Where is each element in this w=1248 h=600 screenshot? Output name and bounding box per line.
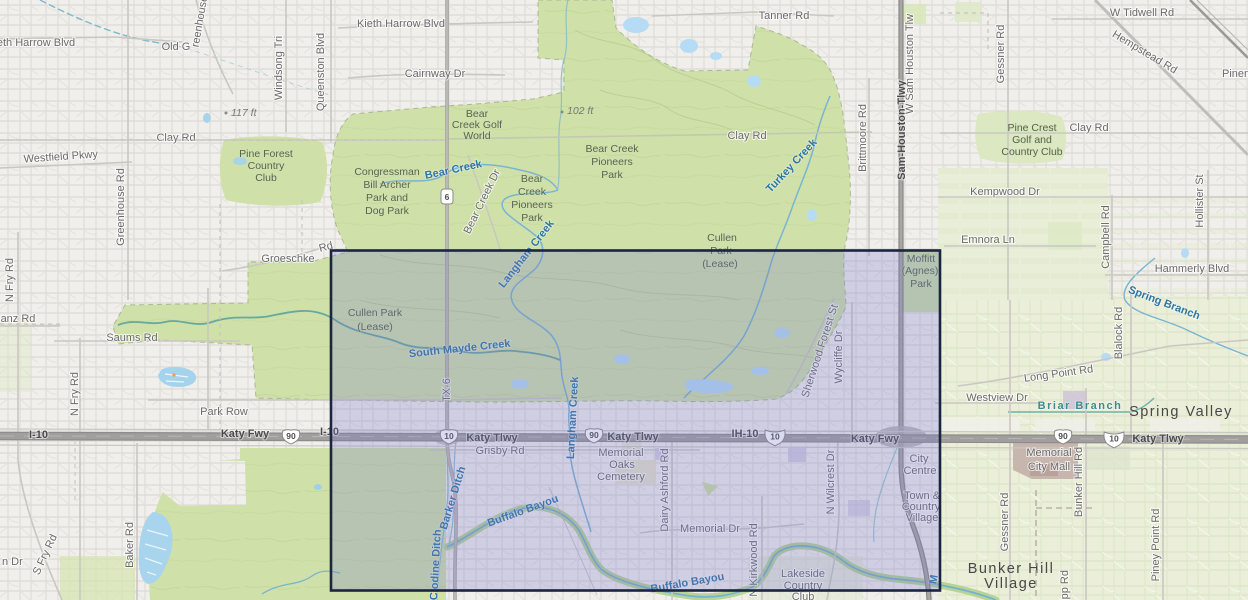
svg-text:Pine Crest: Pine Crest — [1007, 122, 1056, 134]
svg-text:Queenston Blvd: Queenston Blvd — [315, 33, 327, 111]
svg-text:Pioneers: Pioneers — [591, 156, 632, 168]
svg-text:102 ft: 102 ft — [567, 105, 594, 117]
svg-text:Congressman: Congressman — [354, 166, 420, 178]
svg-text:Kempwood Dr: Kempwood Dr — [970, 186, 1040, 198]
svg-text:W Sam Houston Tlw: W Sam Houston Tlw — [904, 14, 916, 114]
svg-text:Briar Branch: Briar Branch — [1038, 400, 1123, 412]
svg-text:anz Rd: anz Rd — [1, 313, 36, 325]
svg-text:hipp Rd: hipp Rd — [1059, 570, 1071, 600]
svg-text:Saums Rd: Saums Rd — [106, 332, 157, 344]
svg-text:Park: Park — [521, 212, 543, 224]
svg-text:90: 90 — [286, 431, 296, 441]
svg-text:Kieth Harrow Blvd: Kieth Harrow Blvd — [357, 18, 445, 30]
svg-text:6: 6 — [445, 192, 450, 202]
svg-text:Village: Village — [984, 576, 1038, 592]
svg-text:Katy Fwy: Katy Fwy — [221, 428, 270, 440]
svg-text:Brittmoore Rd: Brittmoore Rd — [857, 104, 869, 172]
svg-text:Campbell Rd: Campbell Rd — [1100, 205, 1112, 269]
svg-text:Katy Tlwy: Katy Tlwy — [1132, 433, 1184, 445]
svg-text:Hollister St: Hollister St — [1194, 174, 1206, 227]
svg-text:Old G: Old G — [162, 41, 191, 53]
svg-text:eth Harrow Blvd: eth Harrow Blvd — [0, 37, 75, 49]
svg-text:Windsong Tri: Windsong Tri — [273, 36, 285, 100]
svg-text:W Tidwell Rd: W Tidwell Rd — [1110, 7, 1174, 19]
svg-text:Cairnway Dr: Cairnway Dr — [405, 68, 466, 80]
svg-text:Dog Park: Dog Park — [365, 205, 410, 217]
svg-text:Bear: Bear — [521, 173, 544, 185]
svg-text:Park and: Park and — [366, 192, 408, 204]
svg-text:Golf and: Golf and — [1012, 134, 1052, 146]
svg-text:Gessner Rd: Gessner Rd — [995, 25, 1007, 84]
svg-text:90: 90 — [1058, 431, 1068, 441]
svg-text:10: 10 — [1109, 434, 1119, 444]
svg-text:Greenhouse Rd: Greenhouse Rd — [115, 168, 127, 246]
svg-text:Spring Valley: Spring Valley — [1129, 404, 1233, 420]
svg-text:Creek: Creek — [518, 186, 547, 198]
svg-text:Blalock Rd: Blalock Rd — [1113, 307, 1125, 360]
svg-text:City Mall: City Mall — [1028, 461, 1070, 473]
svg-text:Pioneers: Pioneers — [511, 199, 552, 211]
svg-text:Clay Rd: Clay Rd — [727, 130, 766, 142]
svg-text:I-10: I-10 — [29, 429, 48, 441]
svg-text:Country: Country — [248, 160, 286, 172]
svg-text:Country Club: Country Club — [1001, 146, 1062, 158]
svg-text:Cullen: Cullen — [707, 232, 737, 244]
svg-text:Park: Park — [601, 169, 623, 181]
svg-text:Westview Dr: Westview Dr — [966, 392, 1028, 404]
svg-text:Memorial: Memorial — [1026, 447, 1071, 459]
svg-text:Pine Forest: Pine Forest — [239, 148, 293, 160]
svg-text:117 ft: 117 ft — [231, 107, 258, 119]
svg-text:Club: Club — [255, 172, 277, 184]
svg-text:N Fry Rd: N Fry Rd — [69, 372, 81, 416]
svg-text:World: World — [463, 130, 490, 142]
svg-text:N Fry Rd: N Fry Rd — [4, 258, 16, 302]
svg-text:Clay Rd: Clay Rd — [1069, 122, 1108, 134]
svg-text:Club: Club — [792, 591, 815, 600]
svg-text:Bear Creek: Bear Creek — [585, 143, 639, 155]
svg-text:Hammerly Blvd: Hammerly Blvd — [1155, 263, 1230, 275]
svg-text:Tanner Rd: Tanner Rd — [759, 10, 810, 22]
svg-text:Bunker Hill: Bunker Hill — [968, 561, 1055, 577]
svg-text:Groeschke: Groeschke — [261, 253, 314, 265]
svg-text:Emnora Ln: Emnora Ln — [961, 234, 1015, 246]
svg-text:Park Row: Park Row — [200, 406, 248, 418]
svg-text:Pinem: Pinem — [1222, 68, 1248, 80]
svg-text:Gessner Rd: Gessner Rd — [999, 493, 1011, 552]
svg-text:Baker Rd: Baker Rd — [124, 522, 136, 568]
svg-text:Clay Rd: Clay Rd — [156, 132, 195, 144]
svg-text:Bill Archer: Bill Archer — [363, 179, 411, 191]
svg-text:Bunker Hill Rd: Bunker Hill Rd — [1073, 447, 1085, 517]
svg-text:Piney Point Rd: Piney Point Rd — [1150, 509, 1162, 582]
svg-text:n Dr: n Dr — [2, 556, 23, 568]
